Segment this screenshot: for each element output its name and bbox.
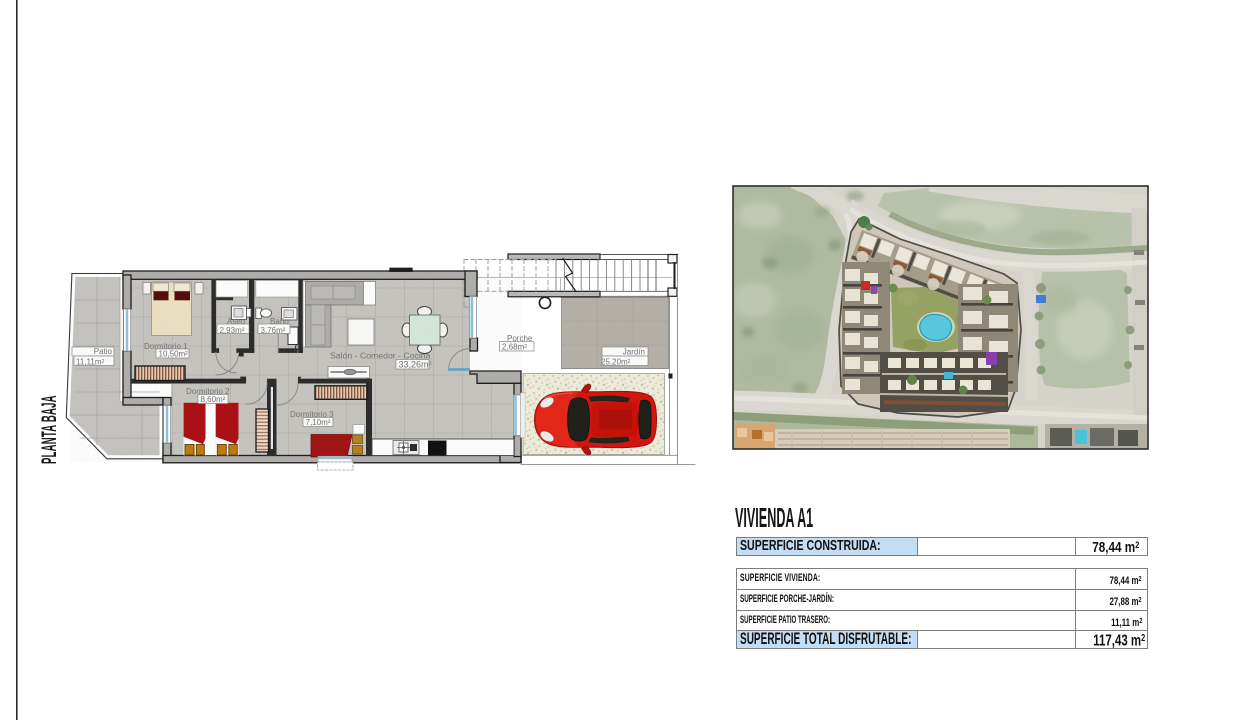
svg-text:PLANTA BAJA: PLANTA BAJA	[38, 395, 61, 464]
